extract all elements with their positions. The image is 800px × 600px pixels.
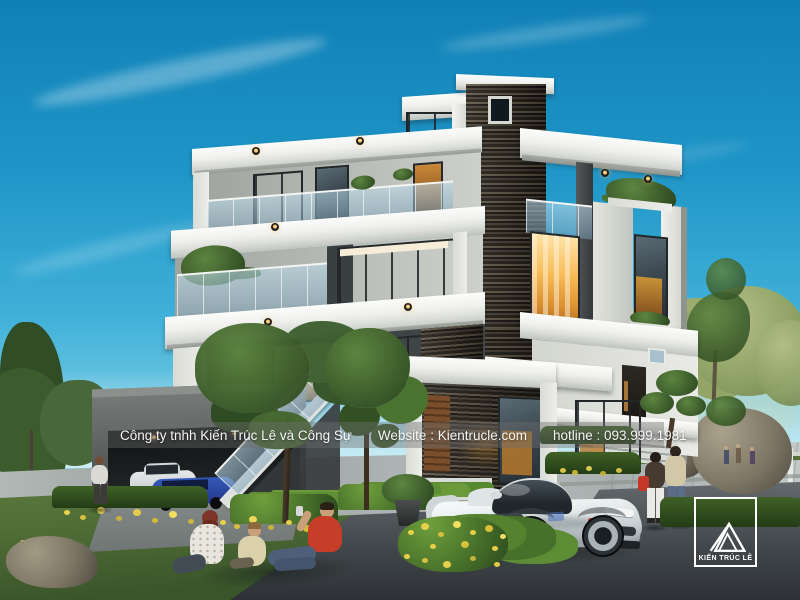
person-shadow [86, 506, 114, 514]
shoe [647, 518, 655, 523]
distant-figures [724, 448, 768, 470]
woman-legs [171, 553, 208, 576]
person-standing [86, 452, 116, 516]
distant-person [736, 448, 741, 463]
company-name: Công ty tnhh Kiến Trúc Lê và Công Sự [120, 428, 352, 443]
watermark-bar: Công ty tnhh Kiến Trúc Lê và Công Sự Web… [108, 422, 664, 448]
garage-car-window [146, 464, 178, 474]
tree [706, 258, 746, 300]
small-window [648, 347, 666, 365]
distant-person-head [736, 444, 740, 448]
downlight [404, 303, 412, 311]
topiary [676, 396, 706, 416]
topiary [640, 392, 674, 414]
person-head [95, 456, 104, 465]
downlight [356, 137, 364, 145]
man-torso [665, 456, 686, 486]
person-leg [94, 484, 100, 504]
family-picnic-group [172, 500, 372, 592]
distant-person [724, 450, 729, 464]
downlight [252, 147, 260, 155]
topiary [656, 370, 698, 396]
architecture-render: Công ty tnhh Kiến Trúc Lê và Công Sự Web… [0, 0, 800, 600]
tower-window [488, 96, 512, 124]
logo-text: KIẾN TRÚC LÊ [699, 555, 753, 562]
distant-person [750, 451, 755, 464]
downlight [271, 223, 279, 231]
woman-leg [647, 488, 655, 520]
man-cup [296, 506, 303, 516]
logo-triangle-icon [706, 521, 746, 553]
person-torso [91, 465, 108, 485]
topiary [706, 396, 746, 426]
flower-cluster [64, 510, 70, 515]
man-hair [320, 502, 334, 510]
flower-cluster [560, 468, 566, 473]
distant-person-head [724, 446, 728, 450]
man-torso-red [308, 516, 342, 552]
flower-cluster [408, 530, 414, 535]
hotline: hotline : 093.999.1981 [553, 428, 687, 443]
wheel-arch [578, 507, 626, 529]
downlight [644, 175, 652, 183]
bush-foliage [398, 516, 508, 572]
downlight [601, 169, 609, 177]
child-hair [248, 522, 261, 529]
tree [195, 323, 310, 413]
logo-badge: KIẾN TRÚC LÊ [694, 497, 757, 567]
website: Website : Kientrucle.com [378, 428, 527, 443]
corner-column [453, 231, 467, 298]
person-leg [101, 484, 107, 504]
flower-bush [398, 508, 528, 584]
flower-cluster [404, 554, 410, 559]
distant-person-head [750, 447, 754, 451]
tree-trunk [30, 430, 33, 474]
canopy-shine [500, 484, 530, 496]
